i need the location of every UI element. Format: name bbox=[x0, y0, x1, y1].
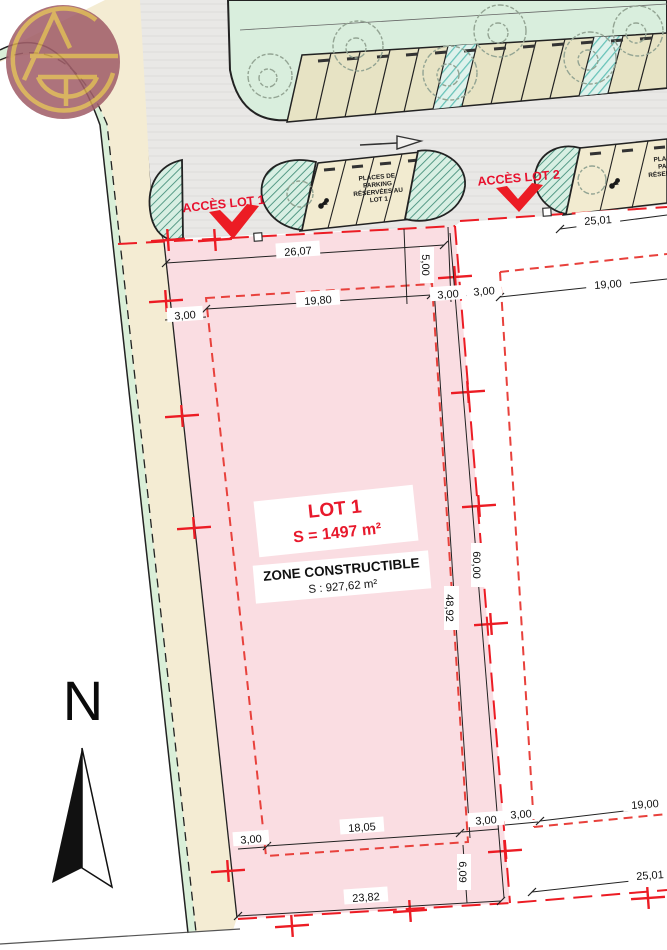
dim-label: 48,92 bbox=[443, 586, 459, 630]
dim-label: 3,00 bbox=[465, 282, 502, 299]
svg-text:19,00: 19,00 bbox=[594, 278, 622, 292]
svg-text:18,05: 18,05 bbox=[348, 821, 376, 835]
boundary-point-marker bbox=[543, 208, 552, 217]
site-plan-page: PLACES DE PARKING RÉSERVÉES AU LOT 1 PLA… bbox=[0, 0, 667, 950]
svg-text:48,92: 48,92 bbox=[443, 594, 455, 622]
svg-text:3,00: 3,00 bbox=[174, 309, 196, 322]
svg-text:3,00: 3,00 bbox=[475, 814, 497, 827]
dim-label: 19,00 bbox=[585, 273, 630, 292]
svg-text:PARKING: PARKING bbox=[658, 161, 667, 171]
north-arrow: N bbox=[52, 669, 112, 887]
svg-text:3,00: 3,00 bbox=[240, 833, 262, 846]
svg-text:25,01: 25,01 bbox=[584, 214, 612, 228]
svg-text:60,00: 60,00 bbox=[470, 551, 482, 579]
svg-text:23,82: 23,82 bbox=[352, 891, 380, 905]
north-label: N bbox=[63, 669, 103, 732]
north-arrow-icon bbox=[52, 748, 82, 883]
dim-label: 6,09 bbox=[456, 854, 471, 890]
svg-text:3,00: 3,00 bbox=[510, 808, 532, 821]
svg-text:25,01: 25,01 bbox=[636, 869, 664, 883]
dim-label: 25,01 bbox=[575, 209, 620, 228]
svg-text:5,00: 5,00 bbox=[419, 254, 431, 275]
dim-label: 19,00 bbox=[622, 793, 667, 812]
boundary-point-marker bbox=[254, 233, 263, 242]
company-logo bbox=[6, 5, 120, 119]
lot2-zone-dashed bbox=[500, 254, 667, 827]
site-plan-drawing: PLACES DE PARKING RÉSERVÉES AU LOT 1 PLA… bbox=[0, 0, 667, 950]
svg-text:3,00: 3,00 bbox=[437, 288, 459, 301]
dim-label: 5,00 bbox=[419, 247, 434, 283]
svg-text:3,00: 3,00 bbox=[473, 285, 495, 298]
svg-text:26,07: 26,07 bbox=[284, 245, 312, 259]
svg-text:19,00: 19,00 bbox=[631, 798, 659, 812]
street-bottom-edge bbox=[0, 929, 240, 944]
dim-label: 25,01 bbox=[627, 864, 667, 883]
svg-text:19,80: 19,80 bbox=[304, 294, 332, 308]
dim-label: 60,00 bbox=[470, 543, 486, 587]
svg-text:6,09: 6,09 bbox=[456, 861, 468, 882]
